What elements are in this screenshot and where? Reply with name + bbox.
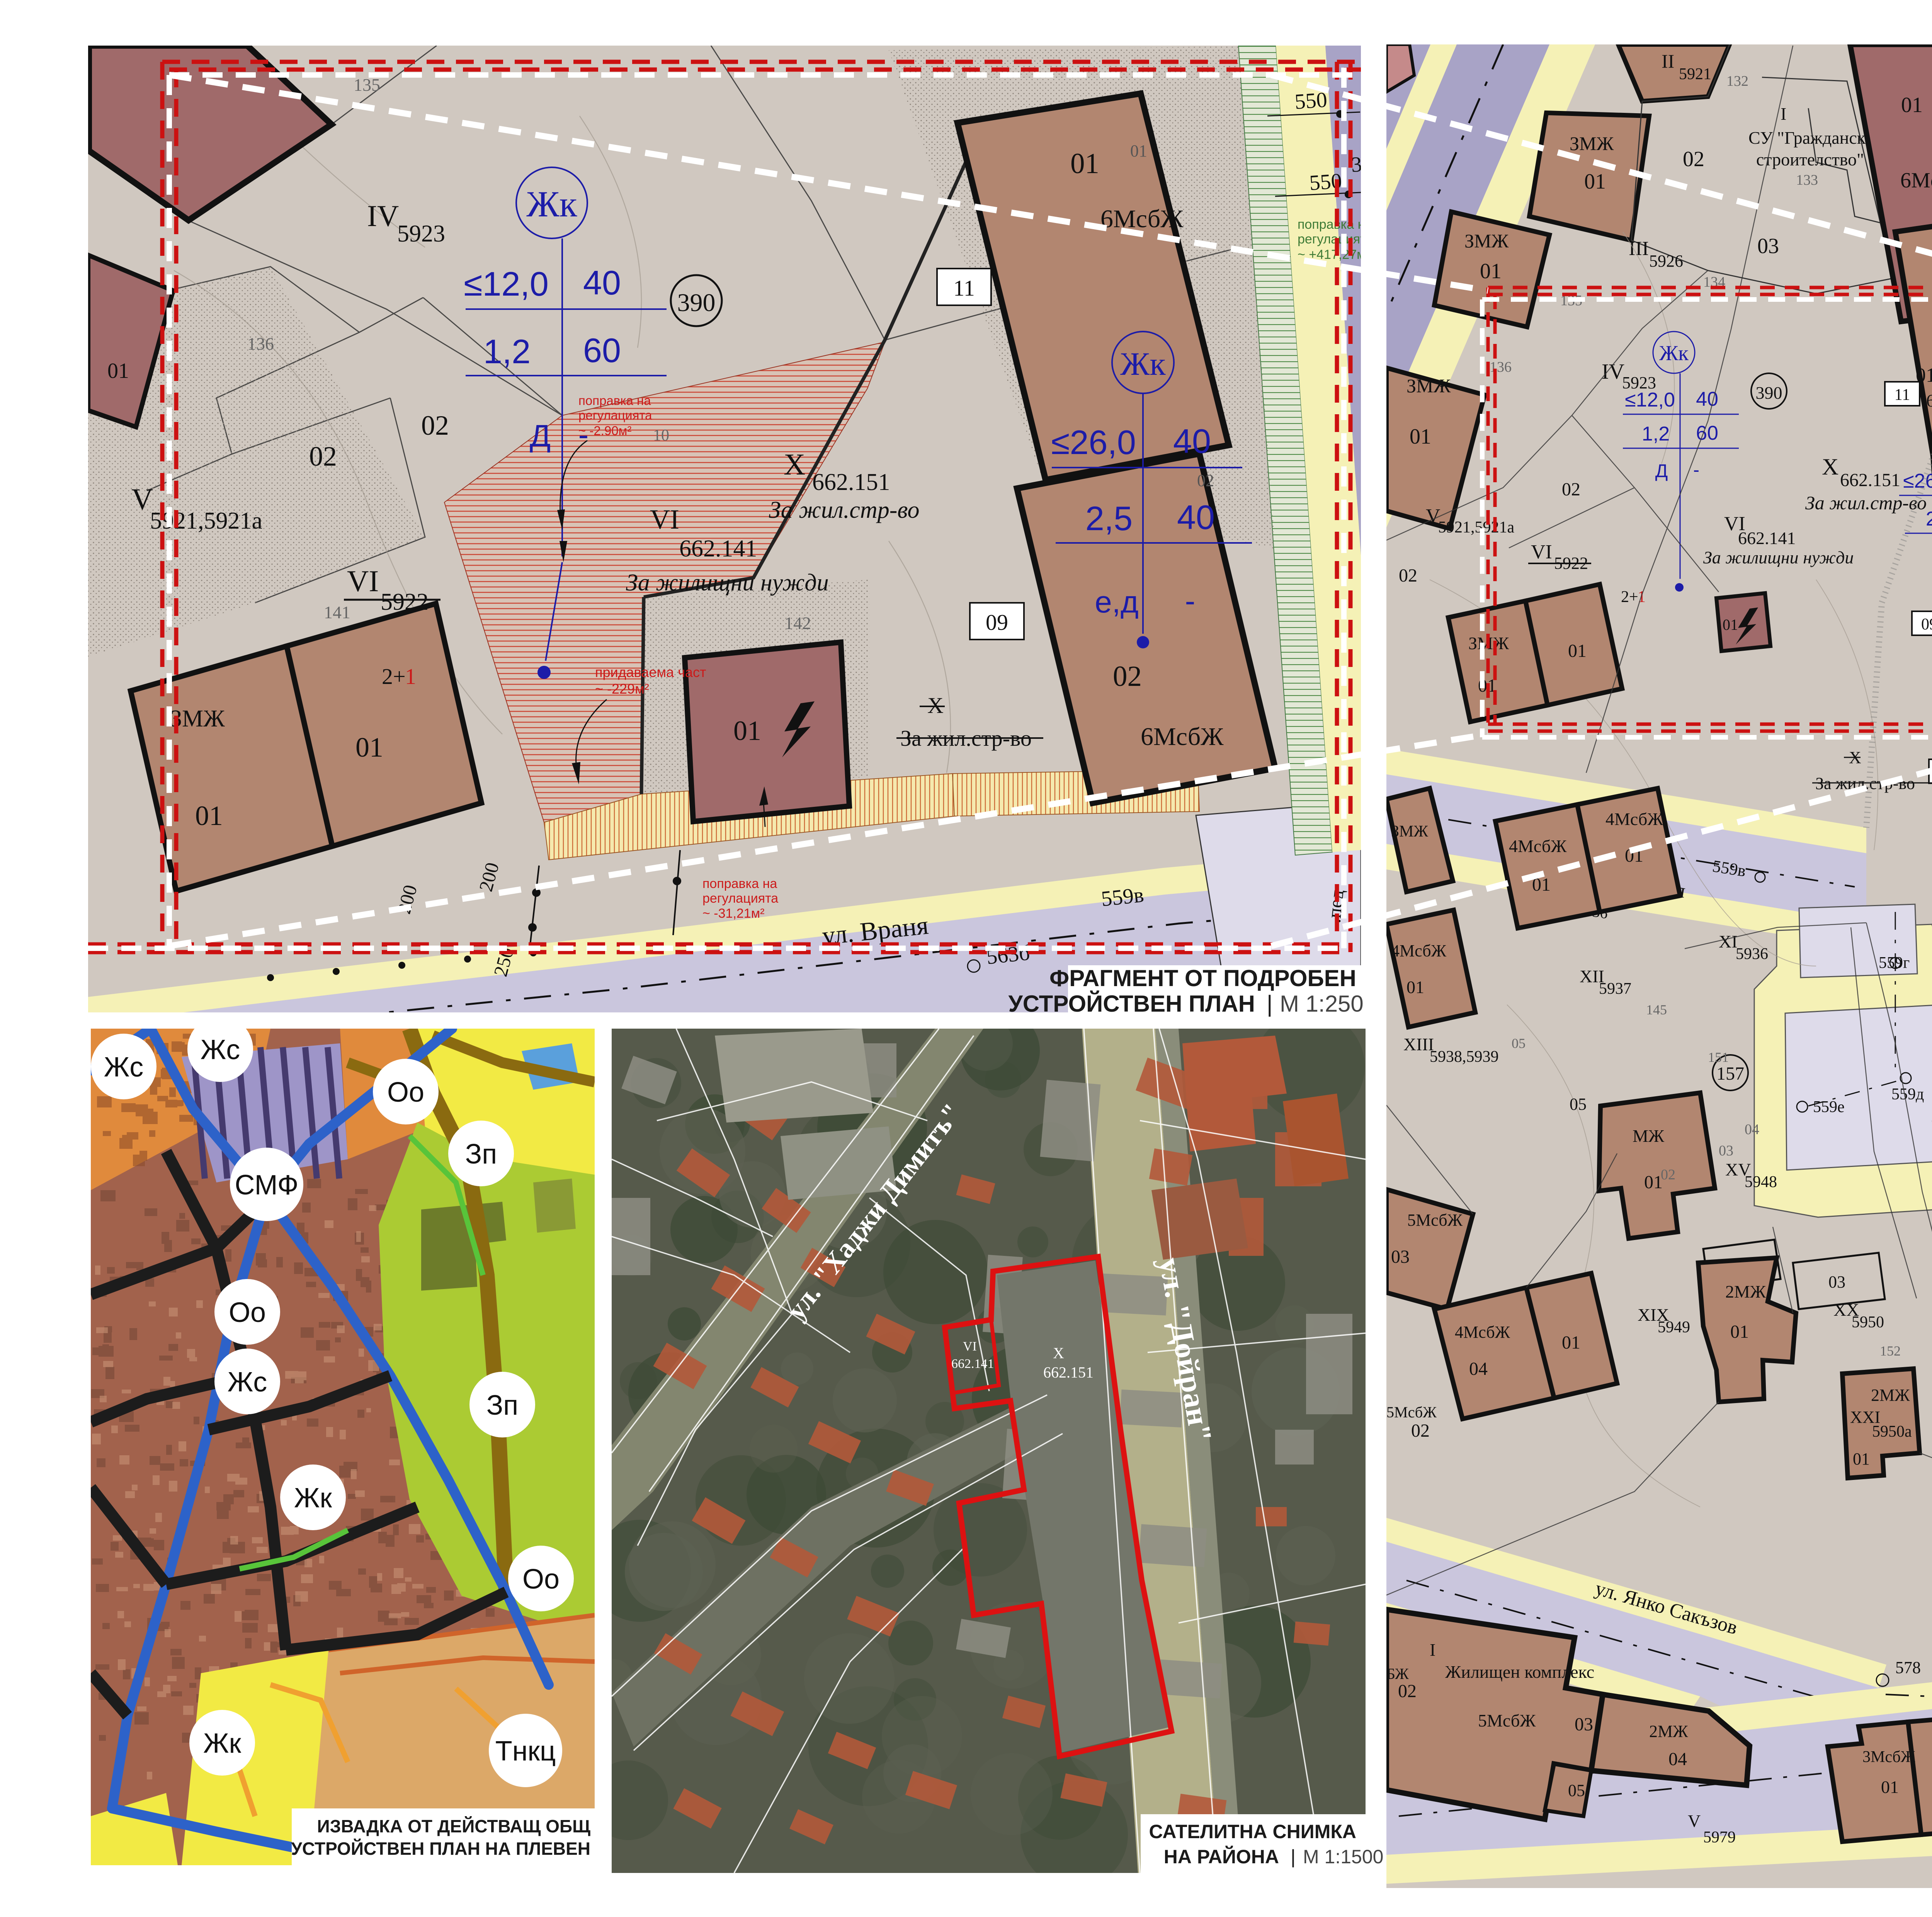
svg-text:СМФ: СМФ (235, 1170, 298, 1201)
svg-text:БЖ: БЖ (1386, 1665, 1409, 1682)
svg-text:01: 01 (1881, 1777, 1899, 1797)
svg-text:01: 01 (1916, 364, 1932, 386)
svg-text:6МсбЖ: 6МсбЖ (1100, 205, 1184, 233)
svg-text:Жк: Жк (526, 184, 577, 225)
svg-text:придаваема част: придаваема част (595, 664, 706, 680)
svg-text:01: 01 (195, 800, 223, 831)
svg-text:01: 01 (1730, 1322, 1749, 1342)
svg-text:152: 152 (1880, 1343, 1901, 1359)
svg-text:01: 01 (1130, 141, 1147, 160)
svg-text:5923: 5923 (1622, 373, 1656, 392)
svg-text:03: 03 (1757, 234, 1779, 258)
svg-text:662.141: 662.141 (951, 1357, 994, 1371)
svg-text:III: III (1629, 238, 1649, 260)
svg-text:IV: IV (1602, 360, 1624, 384)
svg-text:05: 05 (1568, 1781, 1585, 1800)
svg-text:УСТРОЙСТВЕН ПЛАН: УСТРОЙСТВЕН ПЛАН (1008, 991, 1255, 1017)
svg-text:Жк: Жк (1120, 346, 1166, 382)
svg-text:01: 01 (1644, 1172, 1663, 1192)
svg-text:5938,5939: 5938,5939 (1430, 1048, 1499, 1066)
svg-text:Жк: Жк (203, 1728, 241, 1759)
svg-text:≤26,0: ≤26,0 (1903, 470, 1932, 492)
svg-text:151: 151 (1708, 1050, 1729, 1065)
svg-text:02: 02 (1197, 471, 1214, 490)
svg-text:01: 01 (1568, 641, 1587, 661)
svg-text:За жилищни нужди: За жилищни нужди (1703, 548, 1854, 567)
svg-text:5921: 5921 (1679, 65, 1711, 83)
svg-text:5921,5921а: 5921,5921а (1438, 519, 1515, 536)
svg-text:САТЕЛИТНА СНИМКА: САТЕЛИТНА СНИМКА (1149, 1821, 1356, 1842)
svg-text:2,5: 2,5 (1926, 508, 1932, 530)
svg-text:5923: 5923 (397, 221, 445, 247)
svg-text:Оо: Оо (522, 1564, 560, 1595)
svg-text:X: X (927, 693, 944, 718)
svg-text:02: 02 (1411, 1420, 1430, 1441)
svg-text:5МсбЖ: 5МсбЖ (1407, 1211, 1463, 1230)
svg-text:136: 136 (247, 334, 274, 354)
svg-text:390: 390 (677, 289, 716, 317)
svg-text:4МсбЖ: 4МсбЖ (1509, 836, 1567, 856)
svg-text:VI: VI (347, 564, 379, 598)
svg-text:-: - (1185, 583, 1196, 618)
svg-text:05: 05 (1570, 1095, 1587, 1114)
svg-text:5979: 5979 (1703, 1829, 1736, 1846)
svg-text:VI: VI (963, 1339, 977, 1354)
svg-text:4МсбЖ: 4МсбЖ (1391, 941, 1447, 960)
svg-text:Жк: Жк (294, 1483, 332, 1514)
svg-text:V: V (1688, 1811, 1701, 1831)
svg-text:За жил.стр-во: За жил.стр-во (769, 497, 919, 523)
svg-text:За жил.стр-во: За жил.стр-во (1805, 492, 1927, 514)
svg-text:~ -229м²: ~ -229м² (595, 681, 649, 697)
svg-text:03: 03 (1391, 1247, 1410, 1267)
svg-text:02: 02 (1399, 565, 1417, 586)
svg-text:04: 04 (1745, 1121, 1759, 1138)
svg-text:М 1:250: М 1:250 (1280, 991, 1364, 1017)
svg-text:03: 03 (1719, 1143, 1733, 1159)
svg-text:132: 132 (1726, 73, 1748, 89)
svg-text:01: 01 (1584, 170, 1606, 194)
svg-text:02: 02 (309, 441, 337, 472)
svg-text:6МсбЖ: 6МсбЖ (1141, 723, 1224, 751)
svg-text:Жс: Жс (201, 1034, 240, 1065)
svg-text:5948: 5948 (1745, 1173, 1777, 1191)
svg-text:578: 578 (1895, 1658, 1921, 1677)
svg-text:ЗМЖ: ЗМЖ (1391, 823, 1428, 840)
svg-text:I: I (1781, 104, 1786, 124)
svg-text:01: 01 (1562, 1332, 1580, 1353)
svg-text:01: 01 (107, 359, 129, 383)
svg-text:2+: 2+ (382, 664, 406, 689)
svg-text:1: 1 (405, 664, 416, 689)
svg-text:662.151: 662.151 (1840, 470, 1900, 490)
svg-text:XI: XI (1719, 932, 1738, 951)
svg-text:6МсбЖ: 6МсбЖ (1926, 391, 1932, 410)
svg-text:02: 02 (1113, 660, 1142, 692)
svg-text:09: 09 (986, 610, 1008, 635)
svg-text:≤26,0: ≤26,0 (1051, 423, 1136, 461)
svg-text:01: 01 (1723, 616, 1738, 633)
svg-text:390: 390 (1756, 383, 1782, 403)
svg-text:02: 02 (1562, 479, 1580, 500)
svg-text:X: X (1053, 1344, 1064, 1362)
svg-text:5МсбЖ: 5МсбЖ (1478, 1711, 1536, 1730)
svg-text:НА РАЙОНА: НА РАЙОНА (1164, 1846, 1279, 1868)
svg-text:2МЖ: 2МЖ (1871, 1386, 1910, 1405)
svg-text:5950а: 5950а (1872, 1423, 1912, 1441)
svg-text:Тнкц: Тнкц (495, 1736, 556, 1767)
svg-text:40: 40 (1173, 422, 1211, 460)
svg-text:559е: 559е (1813, 1098, 1845, 1116)
svg-text:5936: 5936 (1736, 945, 1768, 963)
svg-text:03: 03 (1828, 1272, 1845, 1291)
svg-text:60: 60 (583, 331, 621, 369)
svg-text:ЗМЖ: ЗМЖ (1464, 230, 1509, 252)
svg-text:3МсбЖ: 3МсбЖ (1862, 1748, 1915, 1766)
svg-text:4МсбЖ: 4МсбЖ (1605, 809, 1663, 829)
svg-text:-: - (1693, 460, 1699, 480)
svg-text:141: 141 (324, 602, 350, 622)
svg-text:5926: 5926 (1649, 252, 1683, 270)
svg-text:40: 40 (583, 264, 621, 302)
svg-text:2+: 2+ (1621, 588, 1638, 606)
svg-text:2МЖ: 2МЖ (1725, 1282, 1766, 1301)
svg-text:11: 11 (953, 276, 975, 301)
svg-text:~ -31,21м²: ~ -31,21м² (702, 906, 764, 921)
svg-text:01: 01 (355, 732, 383, 763)
svg-text:2МЖ: 2МЖ (1649, 1722, 1688, 1741)
svg-text:регулацията: регулацията (702, 891, 778, 906)
svg-text:01: 01 (733, 715, 761, 746)
svg-text:МЖ: МЖ (1633, 1126, 1665, 1146)
svg-text:Зп: Зп (465, 1139, 497, 1170)
svg-text:04: 04 (1668, 1749, 1687, 1769)
svg-text:02: 02 (1661, 1167, 1675, 1183)
svg-text:≤12,0: ≤12,0 (464, 265, 549, 303)
svg-text:поправка на: поправка на (578, 393, 651, 408)
svg-text:5МсбЖ: 5МсбЖ (1386, 1403, 1437, 1421)
svg-text:Д: Д (530, 418, 551, 453)
svg-text:01: 01 (1853, 1449, 1870, 1468)
svg-text:VI: VI (1531, 541, 1552, 563)
svg-text:11: 11 (1895, 386, 1910, 404)
svg-text:VI: VI (650, 504, 679, 535)
svg-text:5949: 5949 (1658, 1318, 1690, 1336)
svg-text:559д: 559д (1891, 1085, 1924, 1103)
svg-text:01: 01 (1070, 148, 1099, 180)
svg-text:|: | (1267, 991, 1273, 1017)
svg-text:133: 133 (1796, 172, 1818, 188)
svg-text:II: II (1662, 50, 1674, 72)
svg-text:559в: 559в (1100, 883, 1145, 911)
svg-text:136: 136 (1490, 359, 1512, 375)
svg-text:01: 01 (1901, 93, 1923, 117)
svg-text:02: 02 (421, 410, 449, 441)
svg-text:5937: 5937 (1599, 980, 1631, 998)
svg-text:142: 142 (784, 613, 811, 633)
svg-text:4МсбЖ: 4МсбЖ (1455, 1323, 1510, 1342)
svg-text:Зп: Зп (486, 1390, 518, 1421)
svg-text:60: 60 (1696, 422, 1718, 444)
svg-text:01: 01 (1480, 259, 1502, 283)
svg-text:За жилищни нужди: За жилищни нужди (626, 570, 829, 596)
svg-text:X: X (1822, 454, 1838, 480)
svg-text:03: 03 (1575, 1714, 1593, 1735)
svg-text:регулацията: регулацията (578, 408, 652, 422)
svg-text:М 1:1500: М 1:1500 (1303, 1846, 1383, 1868)
svg-text:ЗМЖ: ЗМЖ (1570, 133, 1614, 154)
svg-text:40: 40 (1177, 498, 1215, 536)
svg-text:|: | (1291, 1846, 1296, 1868)
svg-text:662.141: 662.141 (679, 536, 757, 562)
svg-text:662.141: 662.141 (1738, 528, 1796, 548)
svg-text:5950: 5950 (1852, 1313, 1884, 1331)
svg-text:Жс: Жс (104, 1052, 143, 1083)
svg-text:1,2: 1,2 (1642, 423, 1670, 445)
svg-text:~ -2.90м²: ~ -2.90м² (578, 424, 631, 438)
svg-text:02: 02 (1398, 1681, 1417, 1701)
svg-text:е,д: е,д (1095, 585, 1138, 619)
svg-text:05: 05 (1512, 1036, 1526, 1051)
svg-text:строителство": строителство" (1756, 150, 1864, 169)
svg-text:145: 145 (1646, 1002, 1667, 1017)
svg-text:поправка на: поправка на (702, 876, 777, 891)
svg-text:Оо: Оо (387, 1077, 424, 1108)
svg-text:559г: 559г (1879, 954, 1910, 972)
svg-text:ЗМЖ: ЗМЖ (1406, 375, 1451, 396)
svg-text:I: I (1430, 1640, 1435, 1660)
svg-text:IV: IV (367, 199, 399, 233)
svg-text:01: 01 (1406, 977, 1424, 997)
svg-text:10: 10 (653, 427, 669, 444)
svg-text:01: 01 (1410, 425, 1431, 449)
svg-text:Жк: Жк (1659, 341, 1689, 365)
svg-text:1,2: 1,2 (483, 332, 531, 371)
svg-text:04: 04 (1469, 1359, 1488, 1379)
svg-text:2,5: 2,5 (1085, 499, 1133, 538)
svg-text:Жс: Жс (228, 1367, 267, 1398)
svg-text:02: 02 (1683, 147, 1704, 171)
svg-text:157: 157 (1716, 1063, 1744, 1084)
svg-text:Жилищен комплекс: Жилищен комплекс (1445, 1662, 1594, 1682)
svg-text:УСТРОЙСТВЕН ПЛАН НА ПЛЕВЕН: УСТРОЙСТВЕН ПЛАН НА ПЛЕВЕН (291, 1839, 590, 1859)
svg-text:Оо: Оо (229, 1297, 266, 1328)
svg-text:ИЗВАДКА ОТ ДЕЙСТВАЩ ОБЩ: ИЗВАДКА ОТ ДЕЙСТВАЩ ОБЩ (317, 1816, 591, 1836)
svg-text:6МсбО: 6МсбО (1900, 168, 1932, 192)
svg-text:ФРАГМЕНТ ОТ ПОДРОБЕН: ФРАГМЕНТ ОТ ПОДРОБЕН (1049, 965, 1356, 991)
svg-text:СУ "Гражданско: СУ "Гражданско (1748, 128, 1874, 148)
svg-text:09: 09 (1921, 616, 1932, 633)
svg-text:662.151: 662.151 (1043, 1364, 1094, 1381)
svg-text:5922: 5922 (381, 589, 429, 615)
svg-text:135: 135 (354, 75, 380, 95)
svg-text:Д: Д (1655, 461, 1668, 481)
svg-text:662.151: 662.151 (812, 469, 890, 495)
svg-text:X: X (784, 447, 805, 481)
